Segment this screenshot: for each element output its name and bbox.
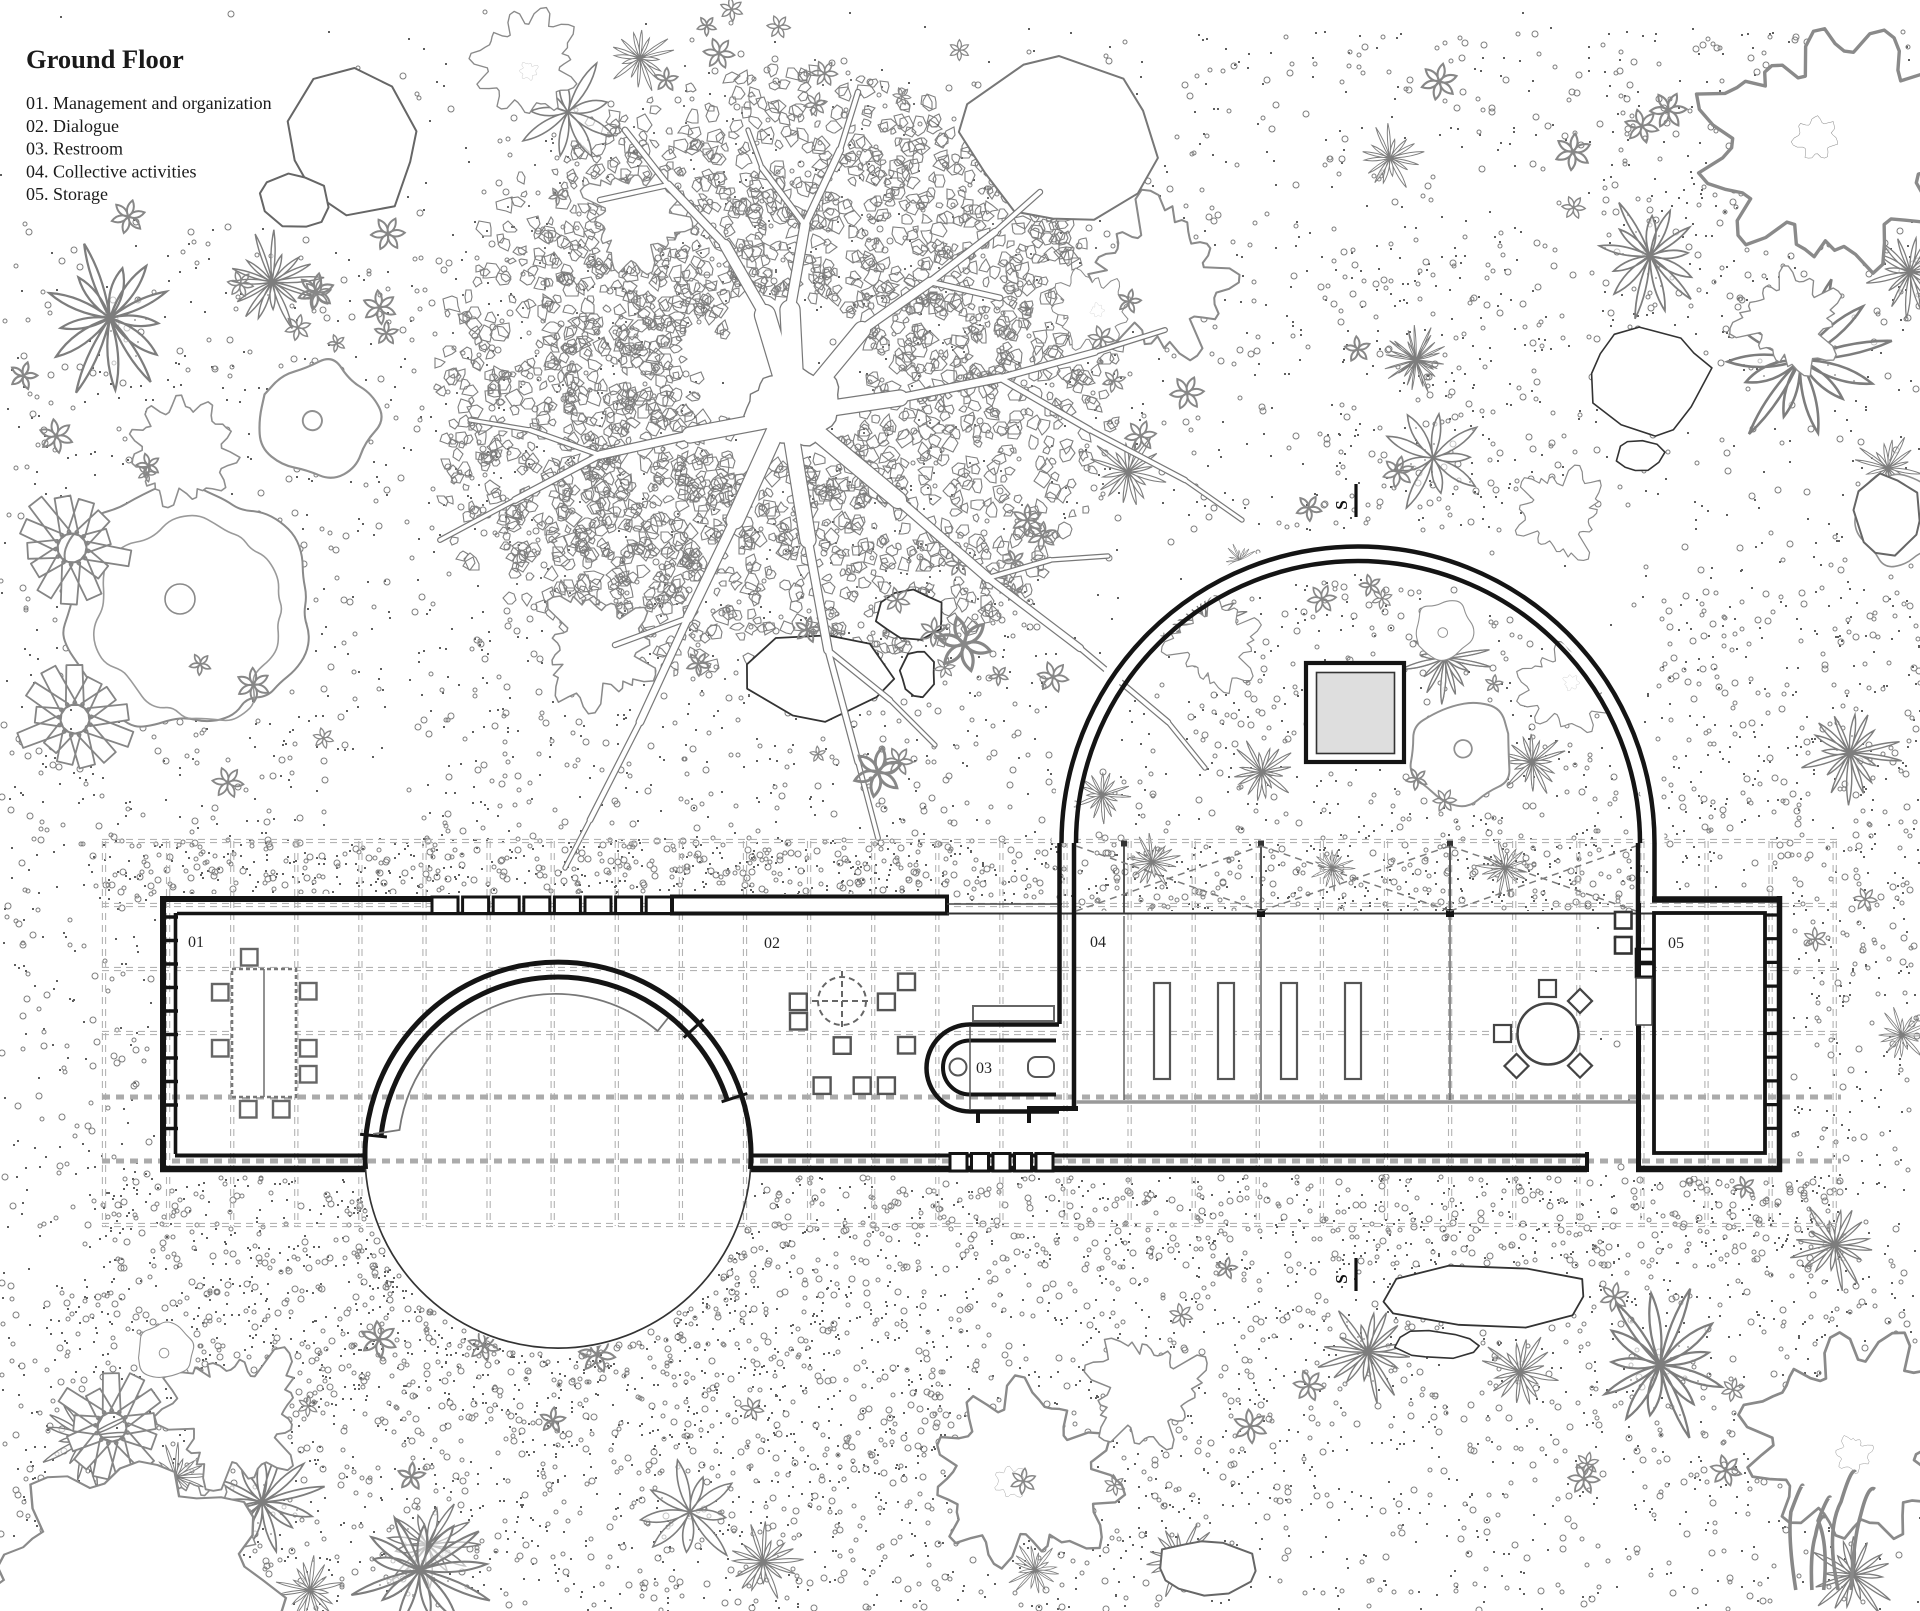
svg-text:Ground Floor: Ground Floor <box>26 44 184 74</box>
svg-text:05: 05 <box>1668 935 1684 952</box>
svg-text:02. Dialogue: 02. Dialogue <box>26 116 119 136</box>
svg-text:S: S <box>1332 1274 1351 1283</box>
svg-text:03: 03 <box>976 1060 992 1077</box>
svg-text:S: S <box>1332 500 1351 509</box>
svg-text:02: 02 <box>764 935 780 952</box>
svg-text:03. Restroom: 03. Restroom <box>26 139 123 159</box>
svg-text:01. Management and organizatio: 01. Management and organization <box>26 93 272 113</box>
svg-text:04: 04 <box>1090 934 1106 951</box>
svg-text:05. Storage: 05. Storage <box>26 184 108 204</box>
svg-text:04. Collective activities: 04. Collective activities <box>26 161 196 181</box>
svg-text:01: 01 <box>188 934 204 951</box>
